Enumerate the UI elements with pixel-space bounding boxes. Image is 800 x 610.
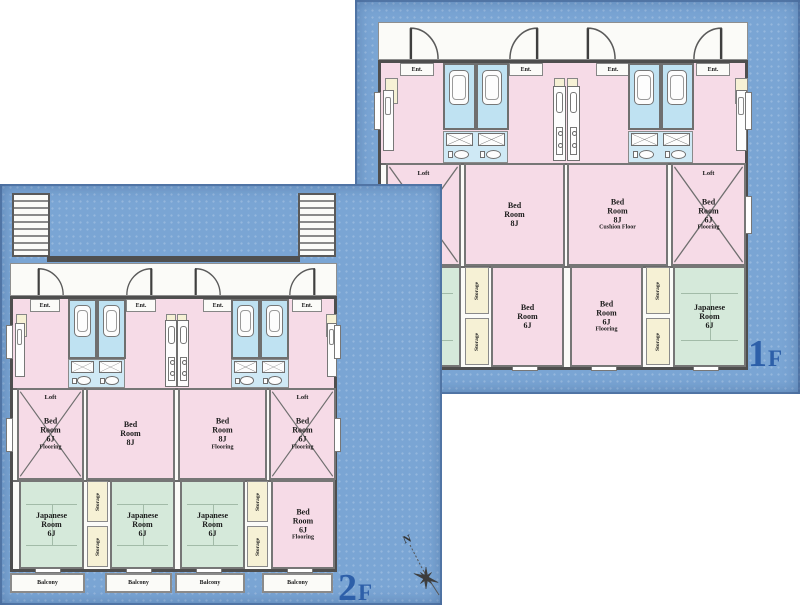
entry-door-arc-icon <box>194 266 221 295</box>
bathtub-icon <box>482 70 502 105</box>
bathtub-icon <box>634 70 654 105</box>
bathtub-icon <box>103 305 120 336</box>
washing-machine-icon <box>234 361 257 373</box>
window-mark <box>334 418 341 452</box>
svg-text:N: N <box>401 533 413 547</box>
washroom-strip <box>628 131 693 163</box>
storage-label: Storage <box>255 537 261 555</box>
entry-door-arc-icon <box>586 25 616 59</box>
bathroom <box>68 299 97 359</box>
toilet-cell <box>99 375 122 387</box>
toilet-icon <box>77 376 90 385</box>
entrance-label-text: Ent. <box>510 67 542 73</box>
tatami-line <box>187 545 238 546</box>
room-label: BedRoom6JFlooring <box>271 417 334 452</box>
storage-label: Storage <box>474 332 480 350</box>
kitchen-sink-icon <box>180 326 187 344</box>
balcony: Balcony <box>262 573 333 593</box>
staircase <box>12 193 50 257</box>
entry-door-arc-icon <box>37 266 64 295</box>
room-label: BedRoom6JFlooring <box>572 299 641 334</box>
toilet-icon <box>486 150 502 159</box>
room-label: JapaneseRoom6J <box>182 511 243 539</box>
kitchen-sink-icon <box>570 92 578 112</box>
side-counter <box>15 323 25 377</box>
entrance-label-text: Ent. <box>293 303 321 309</box>
kitchen-stove-icon <box>556 127 564 155</box>
toilet-tank-icon <box>100 378 105 384</box>
room-label: BedRoom6J <box>493 303 562 331</box>
floor-label-suffix: F <box>358 580 373 605</box>
window-mark <box>591 366 617 371</box>
room-label: BedRoom6JFlooring <box>19 417 82 452</box>
washing-machine-icon <box>262 361 285 373</box>
storage-label: Storage <box>474 281 480 299</box>
entrance-label-text: Ent. <box>697 67 729 73</box>
toilet-icon <box>268 376 281 385</box>
kitchen-counter <box>553 86 566 161</box>
stove-burner-icon <box>558 131 563 136</box>
balcony-label: Balcony <box>264 580 331 586</box>
window-mark <box>693 366 719 371</box>
room-bedroom: LoftBedRoom6JFlooring <box>17 388 84 480</box>
toilet-cell <box>234 375 257 387</box>
toilet-icon <box>639 150 655 159</box>
side-counter <box>383 90 394 151</box>
bathtub-inner <box>106 310 117 332</box>
entrance-label-text: Ent. <box>401 67 433 73</box>
toilet-tank-icon <box>263 378 268 384</box>
kitchen-stove-icon <box>570 127 578 155</box>
room-japanese: JapaneseRoom6J <box>180 480 245 569</box>
entry-door-arc-icon <box>693 25 723 59</box>
toilet-icon <box>105 376 118 385</box>
window-mark <box>512 366 538 371</box>
room-label: BedRoom8J <box>466 201 563 229</box>
storage: Storage <box>247 526 268 567</box>
floor-label-suffix: F <box>768 346 783 371</box>
bathtub-inner <box>240 310 251 332</box>
bathtub-icon <box>237 305 254 336</box>
stove-burner-icon <box>572 143 577 148</box>
room-label: BedRoom8JCushion Floor <box>569 197 666 232</box>
entrance-label: Ent. <box>126 299 156 312</box>
window-mark <box>374 92 381 130</box>
loft-word: Loft <box>673 170 744 177</box>
page: Ent.Ent.Ent.Ent.LoftBedRoom6JFlooringBed… <box>0 0 800 605</box>
floor-label-number: 1 <box>748 333 768 375</box>
washroom-strip <box>443 131 508 163</box>
bathtub-icon <box>74 305 91 336</box>
entrance-label-text: Ent. <box>31 303 59 309</box>
room-label: BedRoom6JFlooring <box>273 507 333 542</box>
kitchen-stove-icon <box>180 357 187 382</box>
bathtub-icon <box>449 70 469 105</box>
bathroom <box>661 63 694 130</box>
stove-burner-icon <box>182 360 187 365</box>
entrance-label-text: Ent. <box>127 303 155 309</box>
window-mark <box>334 325 341 359</box>
entrance-label: Ent. <box>509 63 543 76</box>
room-label: JapaneseRoom6J <box>21 511 82 539</box>
kitchen-sink-icon <box>168 326 175 344</box>
bathroom <box>628 63 661 130</box>
bathroom <box>231 299 260 359</box>
bathtub-inner <box>485 75 498 100</box>
window-mark <box>745 196 752 234</box>
washing-machine-icon <box>446 133 473 146</box>
bathroom <box>476 63 509 130</box>
toilet-tank-icon <box>480 151 485 158</box>
toilet-cell <box>631 148 658 161</box>
room-bedroom: BedRoom8J <box>86 388 175 480</box>
entrance-label: Ent. <box>203 299 233 312</box>
bathtub-inner <box>269 310 280 332</box>
room-label: JapaneseRoom6J <box>112 511 173 539</box>
bathtub-inner <box>77 310 88 332</box>
balcony: Balcony <box>105 573 172 593</box>
storage-label: Storage <box>255 492 261 510</box>
compass-icon: N <box>396 527 448 602</box>
bathroom <box>260 299 289 359</box>
window-mark <box>6 325 13 359</box>
washroom-strip <box>231 359 289 388</box>
tatami-line <box>681 340 739 341</box>
side-sink-icon <box>17 329 22 345</box>
floor-label-1F: 1F <box>748 332 783 376</box>
entrance-label-text: Ent. <box>204 303 232 309</box>
storage: Storage <box>87 526 108 567</box>
loft-word: Loft <box>388 170 459 177</box>
floor-plan-2F: Ent.Ent.Ent.Ent.LoftBedRoom6JFlooringBed… <box>10 263 337 572</box>
entrance-label: Ent. <box>292 299 322 312</box>
washing-machine-icon <box>478 133 505 146</box>
storage: Storage <box>87 481 108 522</box>
room-bedroom: BedRoom6J <box>491 266 564 367</box>
storage-label: Storage <box>655 332 661 350</box>
storage-label: Storage <box>655 281 661 299</box>
room-bedroom: BedRoom8JCushion Floor <box>567 163 668 266</box>
floor-label-number: 2 <box>338 567 358 609</box>
bathtub-inner <box>637 75 650 100</box>
kitchen-counter <box>165 320 177 387</box>
storage: Storage <box>465 318 489 365</box>
balcony-label: Balcony <box>177 580 243 586</box>
toilet-tank-icon <box>235 378 240 384</box>
room-bedroom: LoftBedRoom6JFlooring <box>671 163 746 266</box>
stove-burner-icon <box>170 360 175 365</box>
entry-door-arc-icon <box>289 266 316 295</box>
entrance-label: Ent. <box>596 63 630 76</box>
room-bedroom: LoftBedRoom6JFlooring <box>269 388 336 480</box>
washing-machine-icon <box>631 133 658 146</box>
tatami-line <box>26 545 77 546</box>
staircase <box>298 193 336 257</box>
entry-door-arc-icon <box>409 25 439 59</box>
storage-label: Storage <box>95 537 101 555</box>
room-label: BedRoom8JFlooring <box>180 417 265 452</box>
bathtub-icon <box>266 305 283 336</box>
toilet-icon <box>454 150 470 159</box>
kitchen-stove-icon <box>168 357 175 382</box>
entrance-label: Ent. <box>400 63 434 76</box>
storage: Storage <box>247 481 268 522</box>
entry-porch <box>378 22 748 60</box>
room-bedroom: BedRoom6JFlooring <box>271 480 335 569</box>
balcony: Balcony <box>10 573 85 593</box>
storage-label: Storage <box>95 492 101 510</box>
kitchen-counter <box>567 86 580 161</box>
toilet-cell <box>663 148 690 161</box>
balcony-label: Balcony <box>12 580 83 586</box>
building-outline: Ent.Ent.Ent.Ent.LoftBedRoom6JFlooringBed… <box>10 296 337 572</box>
room-bedroom: BedRoom8JFlooring <box>178 388 267 480</box>
toilet-tank-icon <box>633 151 638 158</box>
bathtub-inner <box>670 75 683 100</box>
entrance-label: Ent. <box>696 63 730 76</box>
bathroom <box>97 299 126 359</box>
side-sink-icon <box>385 97 391 115</box>
toilet-cell <box>262 375 285 387</box>
storage: Storage <box>646 267 670 314</box>
bathroom <box>443 63 476 130</box>
room-bedroom: BedRoom8J <box>464 163 565 266</box>
tatami-line <box>117 545 168 546</box>
room-japanese: JapaneseRoom6J <box>110 480 175 569</box>
toilet-cell <box>446 148 473 161</box>
toilet-tank-icon <box>72 378 77 384</box>
toilet-icon <box>671 150 687 159</box>
storage: Storage <box>646 318 670 365</box>
room-label: BedRoom8J <box>88 420 173 448</box>
window-mark <box>745 92 752 130</box>
entrance-label: Ent. <box>30 299 60 312</box>
washing-machine-icon <box>71 361 94 373</box>
room-label: JapaneseRoom6J <box>675 303 744 331</box>
window-mark <box>6 418 13 452</box>
loft-word: Loft <box>19 394 82 401</box>
stove-burner-icon <box>170 371 175 376</box>
room-bedroom: BedRoom6JFlooring <box>570 266 643 367</box>
toilet-cell <box>478 148 505 161</box>
room-japanese: JapaneseRoom6J <box>673 266 746 367</box>
toilet-tank-icon <box>448 151 453 158</box>
side-sink-icon <box>738 97 744 115</box>
washing-machine-icon <box>663 133 690 146</box>
bathtub-inner <box>452 75 465 100</box>
room-label: BedRoom6JFlooring <box>673 197 744 232</box>
stove-burner-icon <box>572 131 577 136</box>
entry-door-arc-icon <box>509 25 539 59</box>
corridor-rail <box>47 256 300 262</box>
kitchen-sink-icon <box>556 92 564 112</box>
balcony: Balcony <box>175 573 245 593</box>
entry-porch <box>10 263 337 296</box>
toilet-cell <box>71 375 94 387</box>
bathtub-icon <box>667 70 687 105</box>
entrance-label-text: Ent. <box>597 67 629 73</box>
storage: Storage <box>465 267 489 314</box>
washroom-strip <box>68 359 125 388</box>
toilet-icon <box>240 376 253 385</box>
loft-word: Loft <box>271 394 334 401</box>
floor-label-2F: 2F <box>338 566 373 610</box>
washing-machine-icon <box>99 361 122 373</box>
balcony-label: Balcony <box>107 580 170 586</box>
entry-door-arc-icon <box>126 266 153 295</box>
stove-burner-icon <box>558 143 563 148</box>
kitchen-counter <box>177 320 189 387</box>
stove-burner-icon <box>182 371 187 376</box>
room-japanese: JapaneseRoom6J <box>19 480 84 569</box>
toilet-tank-icon <box>665 151 670 158</box>
